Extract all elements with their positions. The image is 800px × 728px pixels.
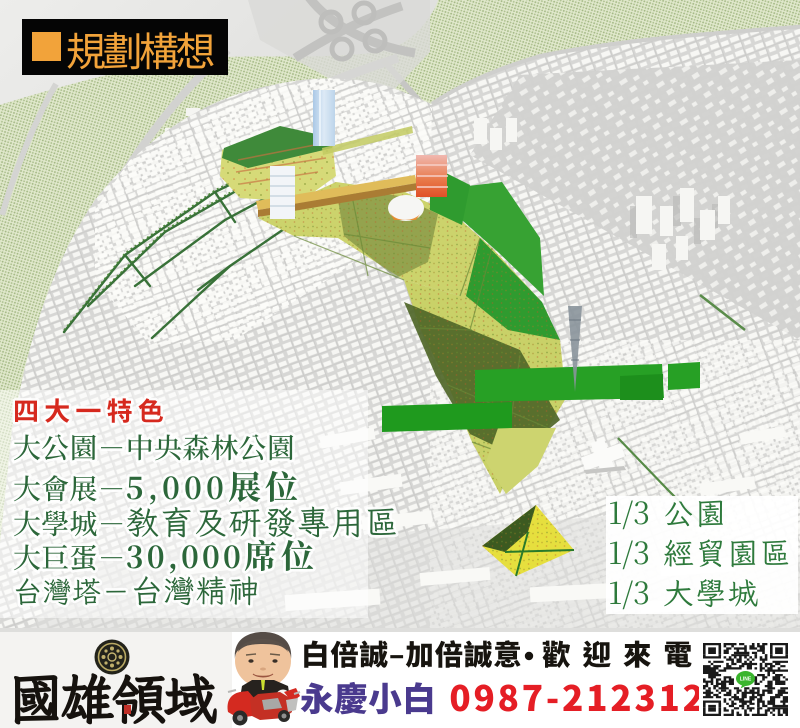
svg-text:LINE: LINE [740, 677, 752, 683]
